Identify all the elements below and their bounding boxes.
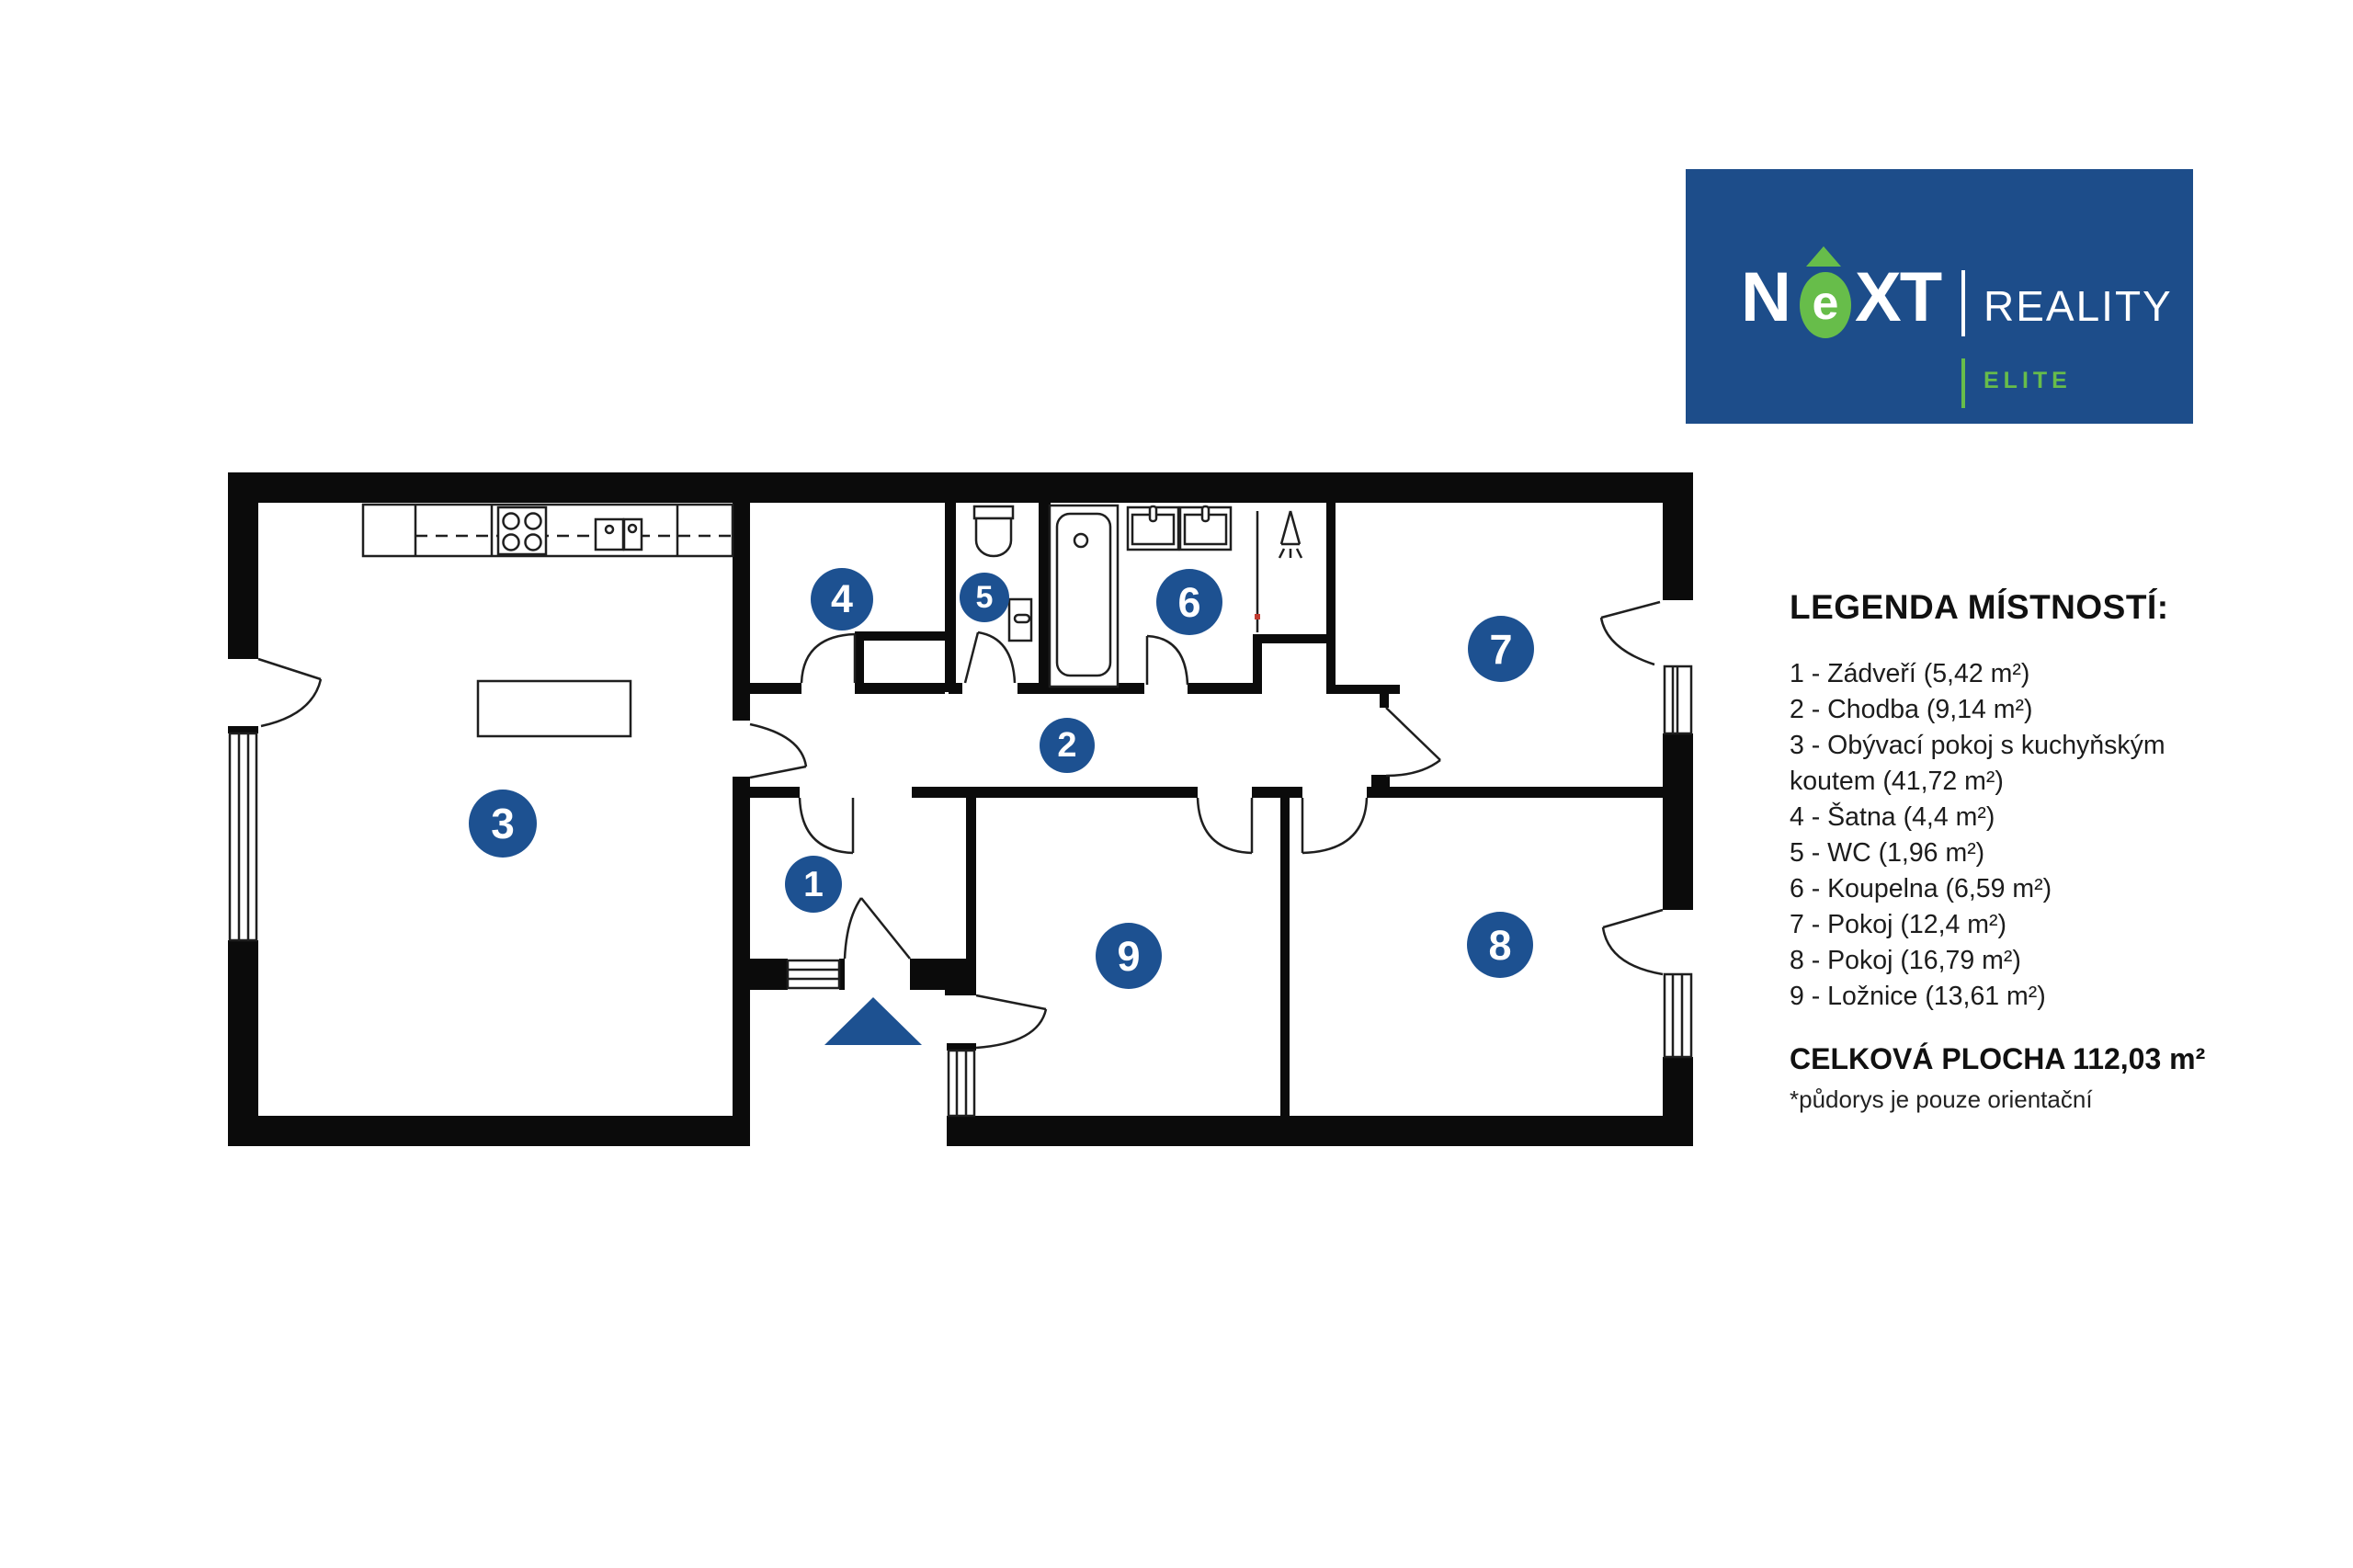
legend-item: 4 - Šatna (4,4 m²) bbox=[1790, 800, 2229, 835]
room-number-badge: 3 bbox=[469, 790, 537, 858]
room-number-badge: 4 bbox=[811, 568, 873, 631]
stove-icon bbox=[498, 507, 546, 554]
room-number-badge: 2 bbox=[1040, 718, 1095, 773]
legend-title: LEGENDA MÍSTNOSTÍ: bbox=[1790, 588, 2229, 627]
legend-total-area: CELKOVÁ PLOCHA 112,03 m² bbox=[1790, 1042, 2229, 1076]
shower-icon bbox=[1279, 511, 1302, 558]
logo-letter-n: N bbox=[1741, 257, 1790, 337]
logo-letters-xt: XT bbox=[1855, 257, 1940, 337]
legend-note: *půdorys je pouze orientační bbox=[1790, 1085, 2229, 1114]
logo-divider bbox=[1961, 270, 1965, 336]
room-number-badge: 6 bbox=[1156, 569, 1222, 635]
legend-item: 3 - Obývací pokoj s kuchyňským koutem (4… bbox=[1790, 728, 2229, 800]
legend-item: 9 - Ložnice (13,61 m²) bbox=[1790, 979, 2229, 1015]
legend-item: 2 - Chodba (9,14 m²) bbox=[1790, 692, 2229, 728]
toilet-icon bbox=[974, 506, 1013, 518]
legend: LEGENDA MÍSTNOSTÍ: 1 - Zádveří (5,42 m²)… bbox=[1790, 588, 2229, 1114]
legend-item: 6 - Koupelna (6,59 m²) bbox=[1790, 871, 2229, 907]
entrance-arrow bbox=[824, 997, 922, 1045]
room-number-badge: 9 bbox=[1096, 923, 1162, 989]
logo-arrow-icon bbox=[1806, 246, 1841, 267]
legend-item: 7 - Pokoj (12,4 m²) bbox=[1790, 907, 2229, 943]
room-number-badge: 8 bbox=[1467, 912, 1533, 978]
kitchen-fixtures bbox=[363, 505, 733, 736]
room-number-badge: 5 bbox=[960, 573, 1009, 622]
bathtub-icon bbox=[1050, 506, 1118, 687]
legend-item: 5 - WC (1,96 m²) bbox=[1790, 835, 2229, 871]
logo-elite-text: ELITE bbox=[1984, 368, 2072, 394]
valve-dot bbox=[1255, 614, 1260, 619]
legend-item: 1 - Zádveří (5,42 m²) bbox=[1790, 656, 2229, 692]
kitchen-sink-icon bbox=[596, 519, 642, 550]
logo-e-oval-icon: e bbox=[1800, 272, 1851, 338]
legend-item: 8 - Pokoj (16,79 m²) bbox=[1790, 943, 2229, 979]
logo-elite-divider bbox=[1961, 358, 1965, 408]
next-reality-logo: N e XT REALITY ELITE bbox=[1686, 169, 2193, 424]
page: 123456789 N e XT REALITY ELITE LEGENDA M… bbox=[0, 0, 2353, 1568]
walls bbox=[228, 472, 1693, 1146]
kitchen-island bbox=[478, 681, 631, 736]
room-number-badge: 1 bbox=[785, 856, 842, 913]
logo-reality-text: REALITY bbox=[1984, 281, 2173, 331]
logo-letter-e: e bbox=[1813, 276, 1839, 331]
room-number-badge: 7 bbox=[1468, 616, 1534, 682]
vanity-sinks-icon bbox=[1128, 506, 1231, 550]
legend-items: 1 - Zádveří (5,42 m²)2 - Chodba (9,14 m²… bbox=[1790, 656, 2229, 1015]
